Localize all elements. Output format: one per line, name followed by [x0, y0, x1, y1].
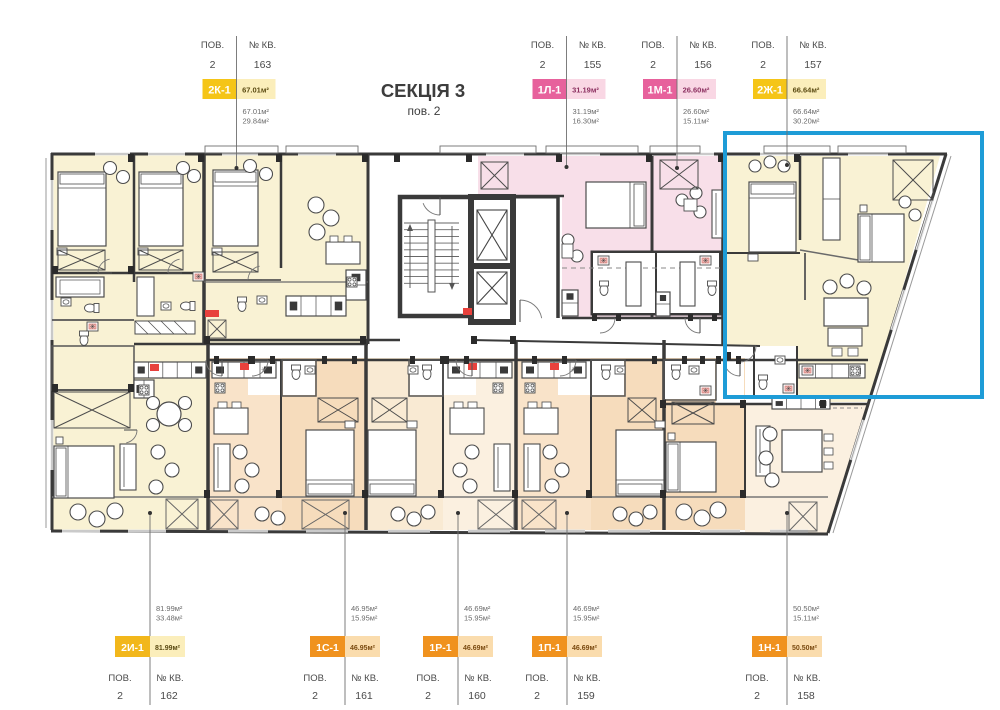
svg-text:2Ж-1: 2Ж-1	[757, 85, 783, 97]
svg-text:1Л-1: 1Л-1	[538, 85, 562, 97]
svg-text:1Р-1: 1Р-1	[429, 642, 451, 654]
svg-text:50.50м²: 50.50м²	[792, 645, 818, 652]
svg-text:2: 2	[650, 59, 656, 71]
svg-text:31.19м²: 31.19м²	[573, 107, 600, 116]
svg-text:15.95м²: 15.95м²	[351, 614, 378, 623]
svg-text:№ КВ.: № КВ.	[579, 40, 606, 51]
svg-text:2И-1: 2И-1	[121, 642, 144, 654]
svg-text:ПОВ.: ПОВ.	[745, 673, 768, 684]
svg-text:✳: ✳	[786, 385, 792, 393]
svg-text:2: 2	[117, 690, 123, 702]
svg-text:✳: ✳	[703, 387, 709, 395]
svg-text:✳: ✳	[805, 367, 811, 375]
svg-text:46.69м²: 46.69м²	[463, 645, 489, 652]
svg-text:67.01м²: 67.01м²	[243, 107, 270, 116]
svg-text:2К-1: 2К-1	[208, 85, 231, 97]
svg-text:29.84м²: 29.84м²	[243, 117, 270, 126]
svg-text:46.95м²: 46.95м²	[350, 645, 376, 652]
svg-text:155: 155	[584, 59, 602, 71]
svg-text:2: 2	[210, 59, 216, 71]
svg-text:46.69м²: 46.69м²	[464, 604, 491, 613]
svg-text:46.95м²: 46.95м²	[351, 604, 378, 613]
svg-text:30.20м²: 30.20м²	[793, 117, 820, 126]
svg-text:✳: ✳	[601, 257, 607, 265]
svg-text:2: 2	[540, 59, 546, 71]
svg-text:50.50м²: 50.50м²	[793, 604, 820, 613]
svg-text:162: 162	[160, 690, 178, 702]
svg-text:81.99м²: 81.99м²	[155, 645, 181, 652]
svg-text:ПОВ.: ПОВ.	[201, 40, 224, 51]
svg-text:№ КВ.: № КВ.	[351, 673, 378, 684]
svg-text:2: 2	[760, 59, 766, 71]
svg-text:2: 2	[754, 690, 760, 702]
svg-text:26.60м²: 26.60м²	[683, 86, 710, 95]
svg-text:№ КВ.: № КВ.	[573, 673, 600, 684]
svg-text:33.48м²: 33.48м²	[156, 614, 183, 623]
svg-text:2: 2	[425, 690, 431, 702]
svg-text:15.95м²: 15.95м²	[573, 614, 600, 623]
svg-text:31.19м²: 31.19м²	[572, 86, 599, 95]
svg-text:81.99м²: 81.99м²	[156, 604, 183, 613]
svg-text:СЕКЦІЯ 3: СЕКЦІЯ 3	[381, 80, 465, 101]
svg-text:15.95м²: 15.95м²	[464, 614, 491, 623]
svg-text:163: 163	[254, 59, 272, 71]
svg-text:159: 159	[577, 690, 595, 702]
svg-text:ПОВ.: ПОВ.	[525, 673, 548, 684]
svg-text:№ КВ.: № КВ.	[249, 40, 276, 51]
svg-text:46.69м²: 46.69м²	[573, 604, 600, 613]
svg-text:✳: ✳	[196, 273, 202, 281]
svg-text:2: 2	[312, 690, 318, 702]
svg-text:15.11м²: 15.11м²	[683, 117, 709, 126]
svg-text:160: 160	[468, 690, 486, 702]
svg-text:2: 2	[534, 690, 540, 702]
svg-text:157: 157	[804, 59, 822, 71]
svg-text:156: 156	[694, 59, 712, 71]
svg-text:№ КВ.: № КВ.	[156, 673, 183, 684]
svg-text:46.69м²: 46.69м²	[572, 645, 598, 652]
svg-text:1Н-1: 1Н-1	[758, 642, 781, 654]
svg-text:пов. 2: пов. 2	[408, 104, 441, 118]
svg-text:ПОВ.: ПОВ.	[303, 673, 326, 684]
svg-text:66.64м²: 66.64м²	[793, 107, 820, 116]
svg-text:✳: ✳	[138, 366, 144, 374]
svg-text:ПОВ.: ПОВ.	[751, 40, 774, 51]
svg-text:67.01м²: 67.01м²	[242, 86, 269, 95]
svg-text:1С-1: 1С-1	[316, 642, 339, 654]
svg-text:ПОВ.: ПОВ.	[641, 40, 664, 51]
svg-text:№ КВ.: № КВ.	[793, 673, 820, 684]
svg-text:1П-1: 1П-1	[538, 642, 561, 654]
svg-text:ПОВ.: ПОВ.	[416, 673, 439, 684]
svg-text:№ КВ.: № КВ.	[799, 40, 826, 51]
svg-text:✳: ✳	[90, 323, 96, 331]
svg-text:✳: ✳	[703, 257, 709, 265]
svg-text:158: 158	[797, 690, 815, 702]
svg-text:66.64м²: 66.64м²	[793, 86, 820, 95]
svg-text:26.60м²: 26.60м²	[683, 107, 710, 116]
svg-text:161: 161	[355, 690, 373, 702]
svg-text:16.30м²: 16.30м²	[573, 117, 600, 126]
svg-text:№ КВ.: № КВ.	[464, 673, 491, 684]
svg-text:1М-1: 1М-1	[647, 85, 672, 97]
svg-text:15.11м²: 15.11м²	[793, 614, 819, 623]
svg-text:ПОВ.: ПОВ.	[108, 673, 131, 684]
svg-text:ПОВ.: ПОВ.	[531, 40, 554, 51]
svg-text:№ КВ.: № КВ.	[689, 40, 716, 51]
